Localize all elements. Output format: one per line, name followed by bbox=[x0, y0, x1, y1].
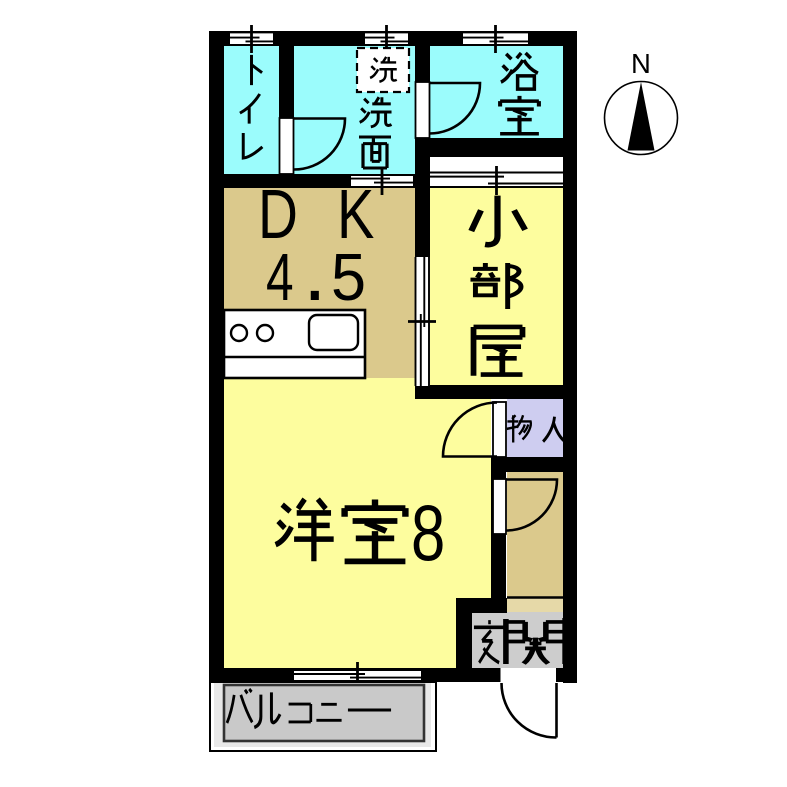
svg-text:.: . bbox=[303, 224, 327, 319]
svg-text:5: 5 bbox=[331, 239, 366, 314]
svg-text:N: N bbox=[631, 48, 651, 79]
svg-text:4: 4 bbox=[266, 241, 294, 315]
svg-text:8: 8 bbox=[411, 490, 445, 578]
